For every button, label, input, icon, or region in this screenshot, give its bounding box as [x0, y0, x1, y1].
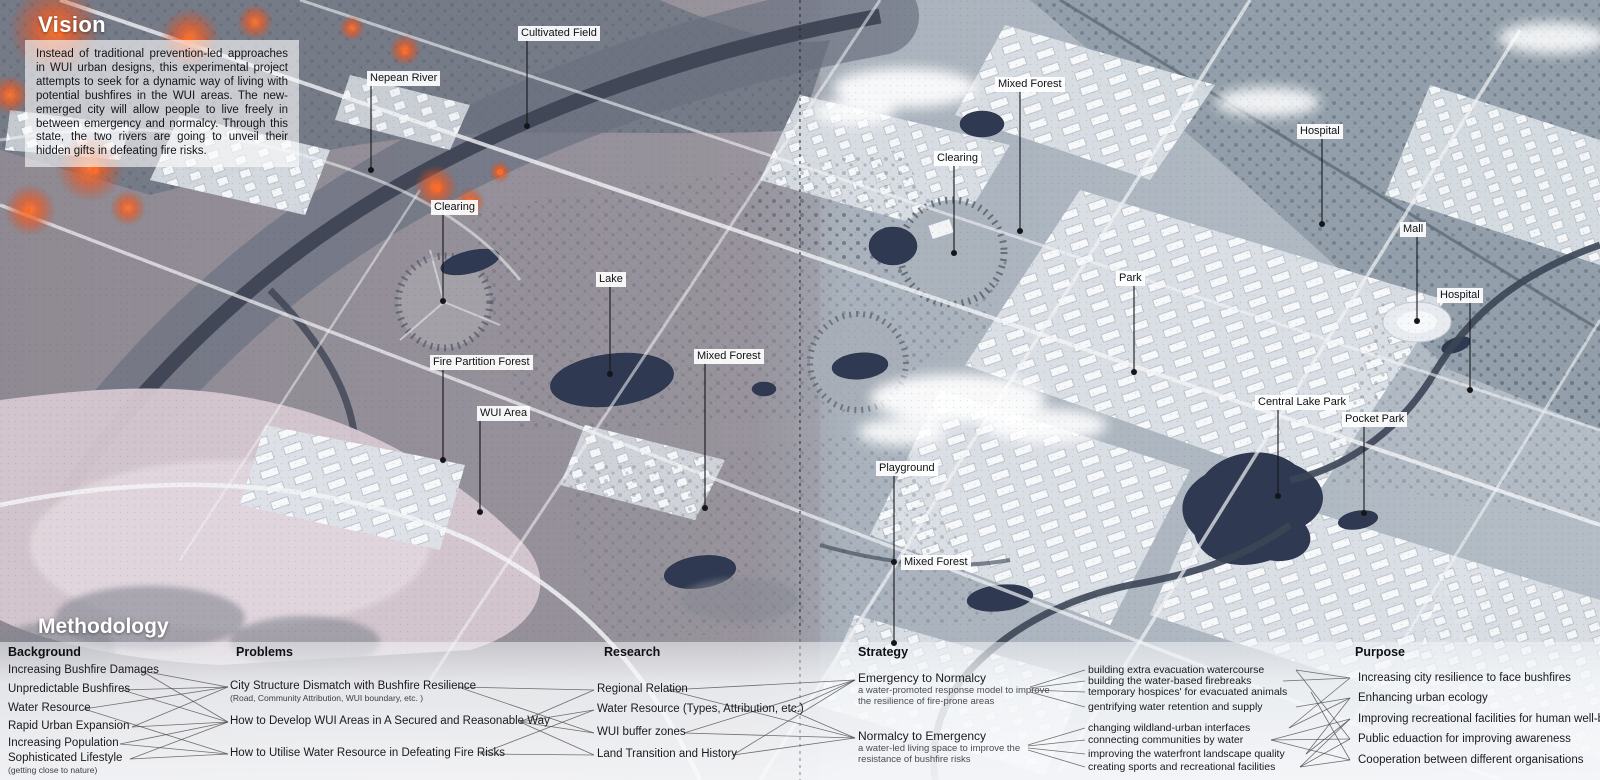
map-label-mixed-forest-central: Mixed Forest: [694, 349, 764, 364]
map-label-clearing-north: Clearing: [934, 151, 981, 166]
map-label-pocket-park: Pocket Park: [1342, 412, 1407, 427]
map-label-park: Park: [1116, 271, 1145, 286]
vision-title: Vision: [38, 12, 106, 38]
presentation-board: BackgroundIncreasing Bushfire DamagesUnp…: [0, 0, 1600, 780]
map-label-wui-area: WUI Area: [477, 406, 530, 421]
map-label-playground: Playground: [876, 461, 938, 476]
map-label-mall: Mall: [1400, 222, 1426, 237]
map-label-nepean-river: Nepean River: [367, 71, 440, 86]
map-label-mixed-forest-north: Mixed Forest: [995, 77, 1065, 92]
map-label-central-lake-park: Central Lake Park: [1255, 395, 1349, 410]
map-label-fire-partition-forest: Fire Partition Forest: [430, 355, 533, 370]
map-label-hospital-east: Hospital: [1437, 288, 1483, 303]
vision-statement: Instead of traditional prevention-led ap…: [25, 40, 299, 167]
map-label-cultivated-field: Cultivated Field: [518, 26, 600, 41]
map-label-mixed-forest-south: Mixed Forest: [901, 555, 971, 570]
methodology-title: Methodology: [38, 615, 169, 639]
map-label-hospital-north: Hospital: [1297, 124, 1343, 139]
map-label-clearing-west: Clearing: [431, 200, 478, 215]
map-label-lake: Lake: [596, 272, 626, 287]
